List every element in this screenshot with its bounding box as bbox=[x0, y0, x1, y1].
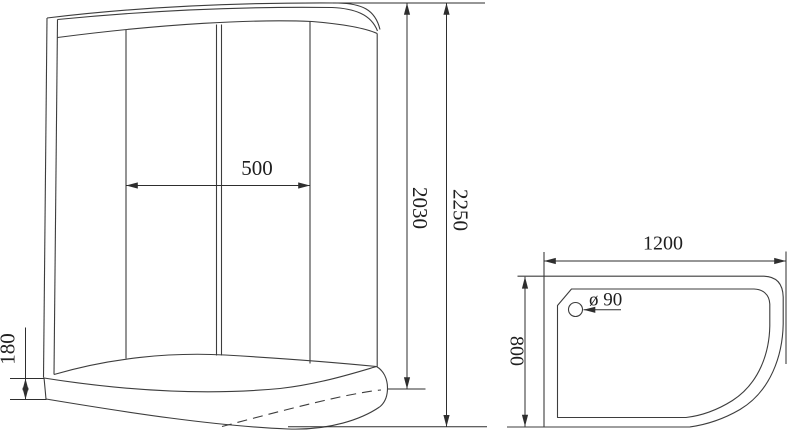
top-frame-lower-curve bbox=[58, 21, 378, 38]
total-height-label: 2250 bbox=[449, 189, 473, 231]
dimension-door-width: 500 bbox=[126, 156, 310, 186]
technical-drawing-page: 500 2030 2250 180 ø 90 bbox=[0, 0, 790, 433]
tray-height-label: 180 bbox=[0, 333, 20, 365]
left-wall-profile-outer-line bbox=[44, 18, 48, 378]
tray-depth-label: 800 bbox=[506, 336, 528, 366]
tray-apron-left-edge bbox=[44, 378, 46, 400]
tray-hidden-edge-dashed bbox=[222, 390, 381, 427]
front-view: 500 2030 2250 180 bbox=[0, 3, 487, 429]
tray-right-bulge-cap bbox=[377, 367, 388, 408]
top-frame-mid-curve bbox=[58, 7, 378, 31]
drain-hole bbox=[569, 303, 583, 317]
drain-diameter-label: ø 90 bbox=[589, 290, 622, 311]
tray-apron-top-curve bbox=[44, 367, 377, 392]
dimension-total-height: 2250 bbox=[447, 3, 473, 427]
tray-width-label: 1200 bbox=[643, 233, 683, 255]
dimension-tray-height: 180 bbox=[0, 328, 47, 400]
left-wall-profile-inner-line bbox=[54, 20, 58, 375]
dimension-drain-diameter: ø 90 bbox=[584, 290, 623, 311]
top-view: ø 90 1200 800 bbox=[506, 233, 787, 428]
tray-back-rim-curve bbox=[54, 354, 377, 374]
dimension-glass-height: 2030 bbox=[407, 3, 432, 389]
door-width-label: 500 bbox=[241, 156, 273, 180]
shower-cabin-technical-drawing: 500 2030 2250 180 ø 90 bbox=[0, 0, 790, 433]
glass-height-label: 2030 bbox=[408, 187, 432, 229]
dimension-tray-width: 1200 bbox=[544, 233, 786, 365]
tray-apron-bottom-curve bbox=[46, 399, 380, 429]
dimension-tray-depth: 800 bbox=[506, 277, 528, 427]
